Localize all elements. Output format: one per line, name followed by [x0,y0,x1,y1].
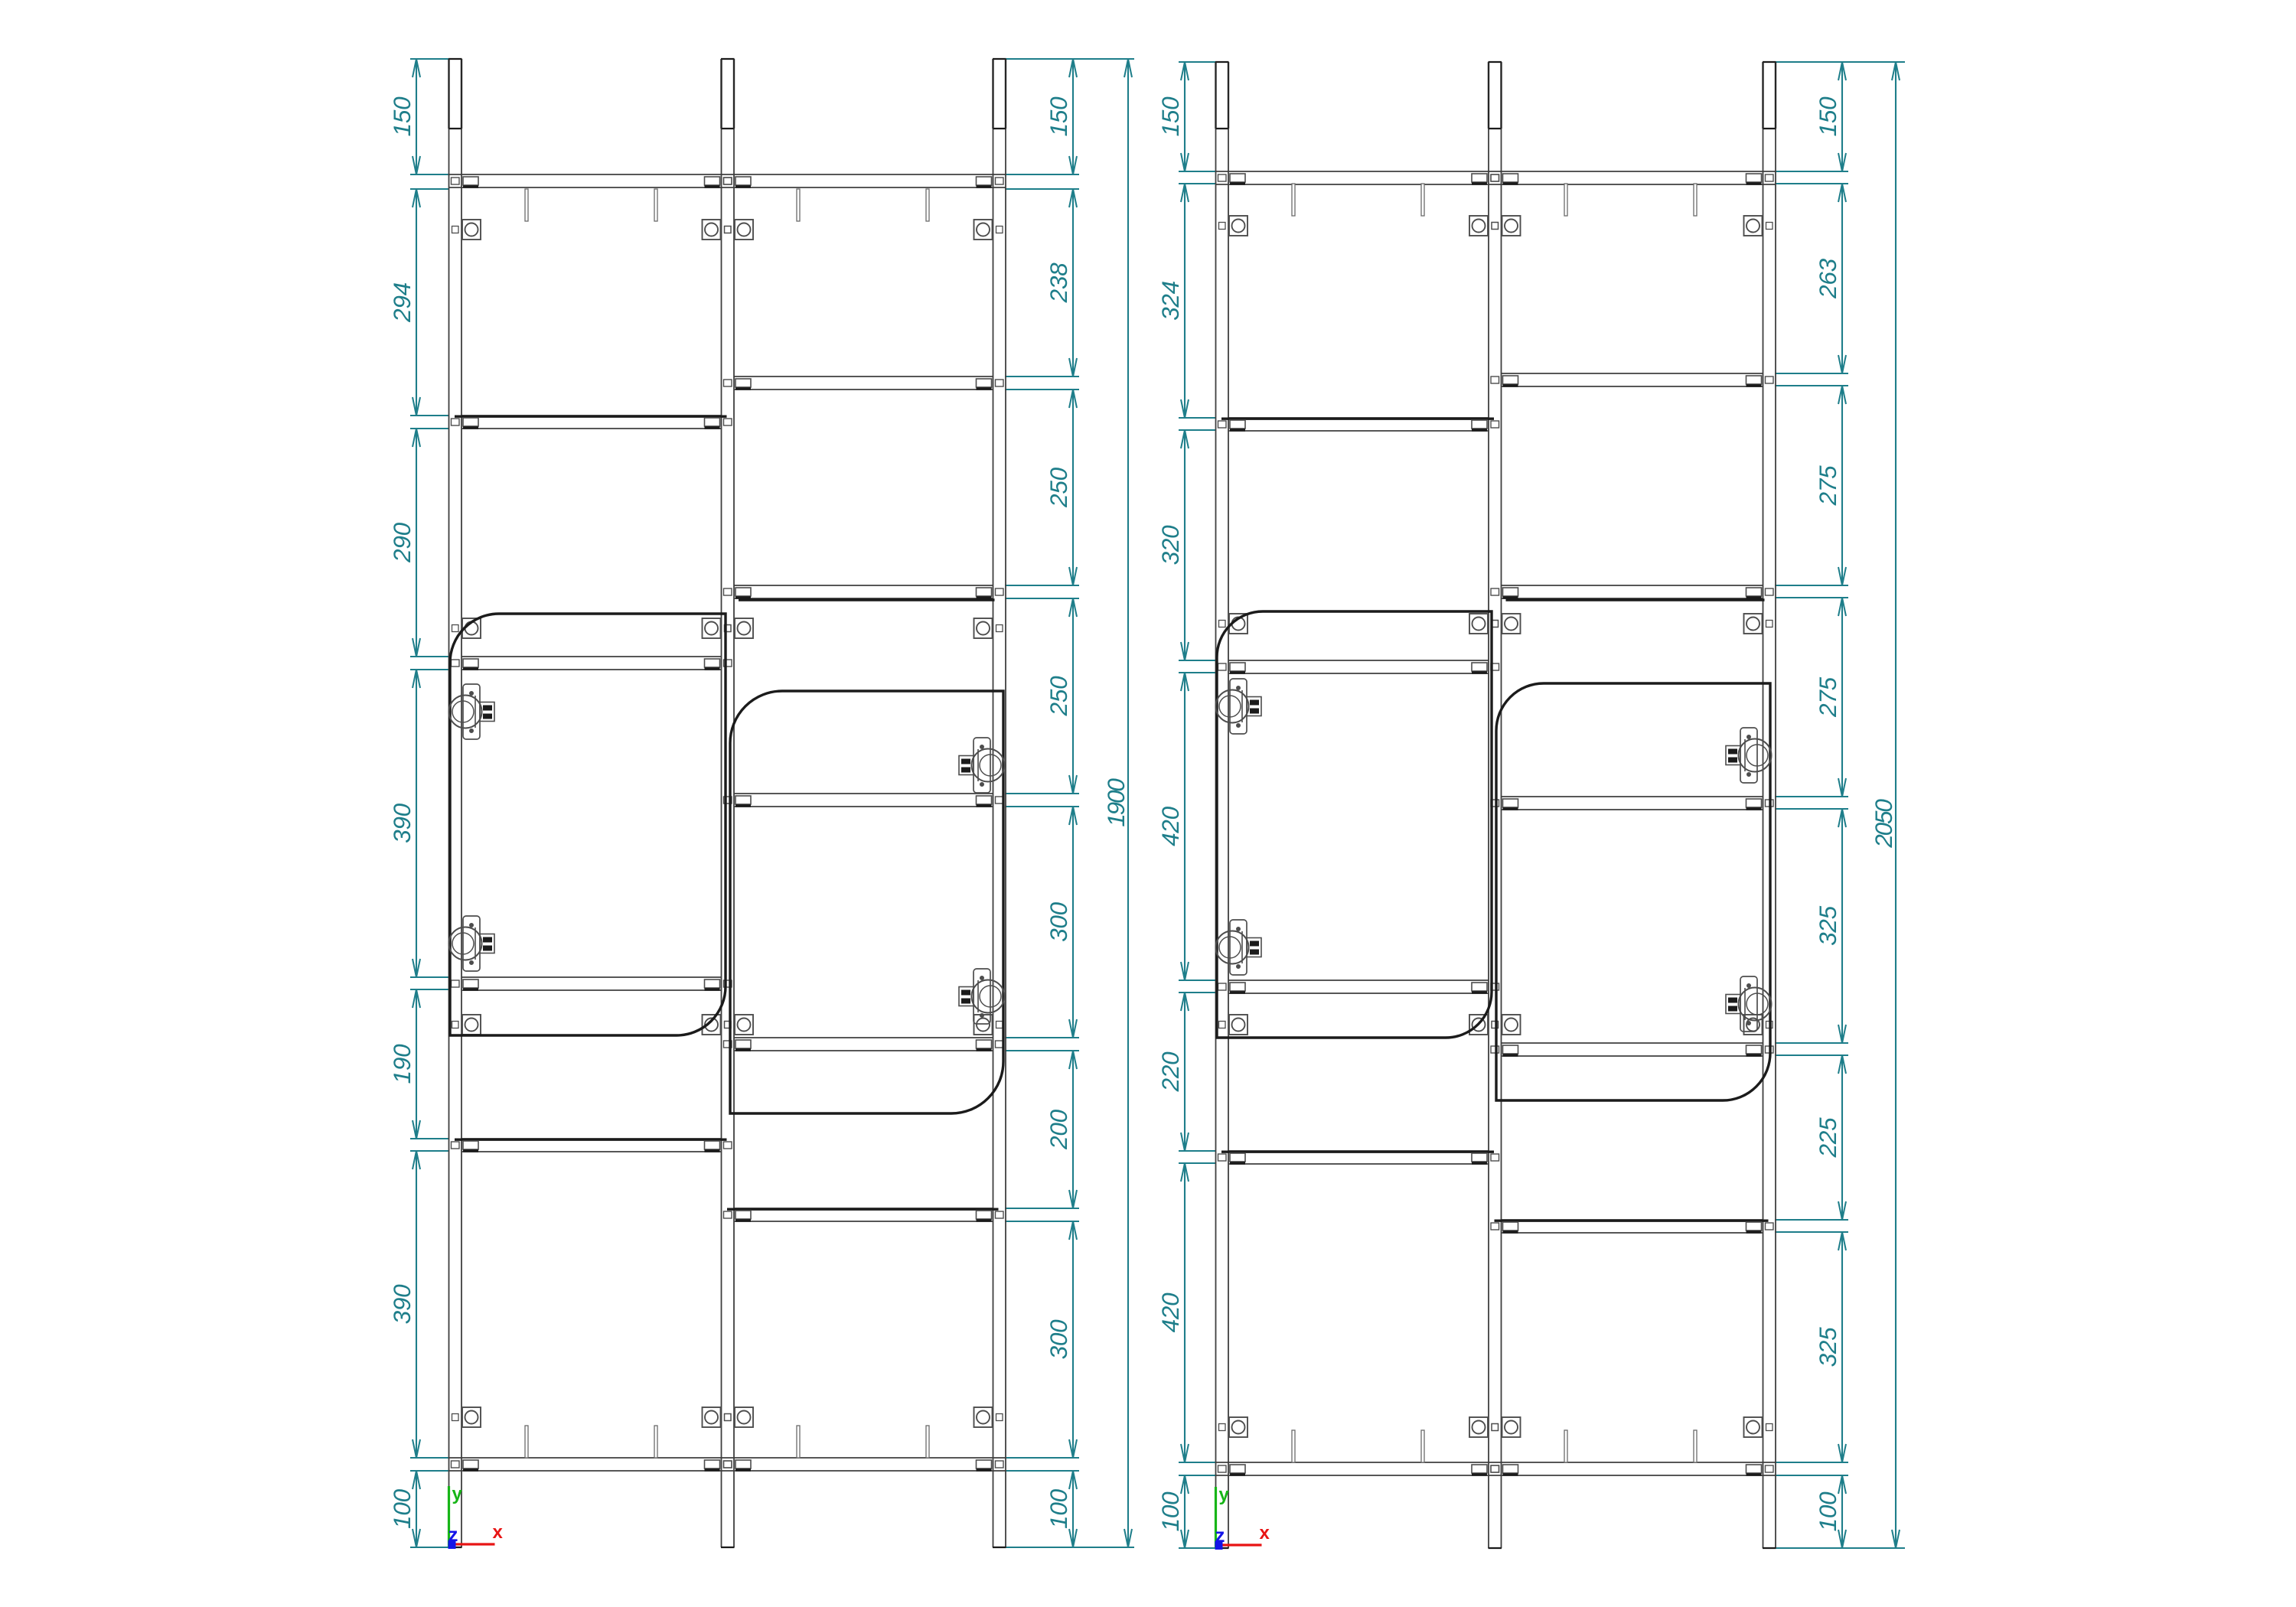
svg-text:200: 200 [1045,1109,1072,1149]
svg-text:420: 420 [1156,1292,1184,1332]
svg-text:100: 100 [1156,1491,1184,1531]
svg-text:225: 225 [1814,1117,1841,1158]
svg-text:294: 294 [388,282,416,323]
svg-text:100: 100 [1814,1491,1841,1531]
svg-text:x: x [493,1522,504,1543]
svg-text:238: 238 [1045,262,1072,303]
svg-text:150: 150 [1045,96,1072,136]
svg-text:324: 324 [1156,281,1184,321]
svg-text:150: 150 [1814,96,1841,136]
svg-text:300: 300 [1045,1319,1072,1359]
svg-text:325: 325 [1814,1327,1841,1367]
svg-text:420: 420 [1156,806,1184,846]
svg-text:x: x [1260,1523,1270,1543]
svg-text:y: y [1219,1485,1230,1505]
svg-text:190: 190 [388,1044,416,1084]
svg-text:250: 250 [1045,676,1072,716]
svg-text:1900: 1900 [1102,778,1130,827]
svg-text:320: 320 [1156,525,1184,565]
svg-text:300: 300 [1045,901,1072,941]
svg-text:150: 150 [388,96,416,136]
svg-text:263: 263 [1814,258,1841,298]
svg-text:100: 100 [1045,1488,1072,1528]
svg-text:150: 150 [1156,96,1184,136]
svg-text:275: 275 [1814,676,1841,717]
svg-text:390: 390 [388,803,416,843]
svg-text:325: 325 [1814,905,1841,945]
svg-text:220: 220 [1156,1051,1184,1092]
svg-text:275: 275 [1814,465,1841,506]
svg-text:y: y [452,1484,463,1504]
svg-text:100: 100 [388,1488,416,1528]
svg-text:290: 290 [388,522,416,562]
svg-text:2050: 2050 [1870,799,1897,849]
svg-text:390: 390 [388,1284,416,1324]
svg-text:250: 250 [1045,467,1072,507]
